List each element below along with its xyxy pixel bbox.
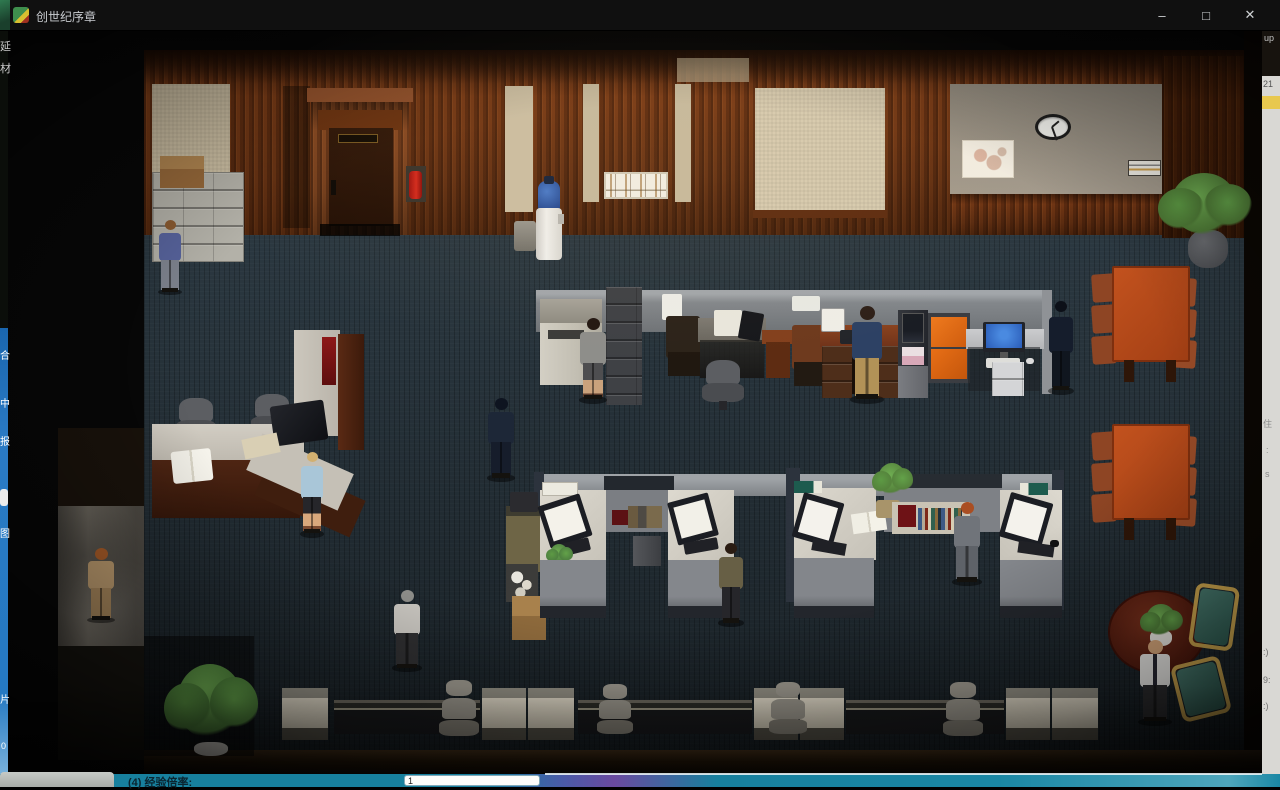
- person-hallway-woman-tan[interactable]: [86, 548, 116, 622]
- exp-rate-input[interactable]: [404, 775, 540, 786]
- person-woman-blue-suit-feet: [162, 288, 178, 292]
- map-poster[interactable]: [962, 140, 1014, 178]
- wall-recess-shadow: [283, 86, 310, 228]
- person-copier-woman-legs: [583, 363, 603, 397]
- round-table-plant-foliage: [1161, 610, 1183, 632]
- person-reception-visitor-legs: [303, 497, 320, 531]
- bottom-office-chair-headrest: [776, 682, 801, 697]
- door-pediment: [307, 88, 413, 102]
- person-hallway-woman-tan-head: [95, 548, 108, 560]
- person-copier-woman[interactable]: [578, 318, 608, 402]
- door-handle: [331, 180, 336, 195]
- person-man-white-shirt-walking-legs: [396, 633, 417, 665]
- desktop-right-yellow-row: [1262, 96, 1280, 109]
- person-woman-blue-suit-head: [165, 220, 176, 230]
- person-police-officer-standing-head: [1055, 301, 1067, 312]
- window-controls: – □ ✕: [1140, 0, 1272, 30]
- wall-fabric-panel: [755, 88, 885, 212]
- info-kiosk-base: [898, 366, 928, 398]
- bottom-office-chair[interactable]: [766, 682, 810, 740]
- person-man-gray-suit-torso: [954, 516, 981, 548]
- person-man-white-shirt-walking-head: [401, 590, 414, 602]
- cubicle-1-paper-tray: [542, 482, 578, 496]
- potted-plant-bottom-left-pot: [194, 742, 228, 756]
- cubicle-4-base: [1000, 606, 1062, 618]
- wall-gray-wainscot: [950, 194, 1162, 235]
- storage-olive-cabinet[interactable]: [506, 506, 540, 572]
- person-man-white-shirt-walking-torso: [394, 604, 421, 635]
- person-man-olive-sweater-torso: [719, 557, 743, 589]
- background-taskbar: (4) 经验倍率:: [0, 774, 1280, 787]
- door-header-trim: [318, 110, 402, 130]
- shelf-red-book[interactable]: [612, 510, 628, 525]
- partition-plant-foliage: [892, 468, 913, 492]
- person-hallway-woman-tan-legs: [91, 588, 111, 618]
- person-man-olive-sweater-legs: [722, 587, 740, 620]
- close-button[interactable]: ✕: [1228, 0, 1272, 30]
- wall-beige-strip-c: [675, 84, 691, 202]
- bottom-beige-unit-top: [528, 688, 574, 698]
- table-leg: [1166, 360, 1176, 382]
- bottom-office-chair-back: [442, 698, 477, 719]
- water-cooler-cap: [544, 176, 554, 184]
- reception-wing-side: [338, 334, 364, 450]
- exp-rate-label: (4) 经验倍率:: [128, 774, 192, 790]
- wall-fabric-sill: [753, 210, 887, 218]
- person-police-officer-standing-legs: [1052, 351, 1070, 388]
- wall-top-inset: [677, 58, 749, 82]
- bottom-beige-unit-base: [482, 728, 526, 740]
- bottom-beige-unit-top: [1052, 688, 1098, 698]
- desktop-right-panel: [1262, 76, 1280, 775]
- cubicle-4-mouse: [1050, 540, 1059, 547]
- desktop-right-dark-top: [1262, 30, 1280, 76]
- bottom-beige-unit[interactable]: [282, 688, 328, 740]
- bottom-beige-unit-base: [1006, 728, 1050, 740]
- shelf-clutter: [628, 506, 662, 528]
- door-threshold-shadow: [320, 224, 400, 236]
- office-chair-upper[interactable]: [700, 360, 746, 412]
- office-chair-upper-stem: [719, 401, 726, 410]
- person-bald-man-white-shirt-legs: [1143, 685, 1167, 719]
- person-man-white-shirt-walking-feet: [397, 664, 416, 668]
- desk-doc-holder: [821, 308, 845, 332]
- door-sign: [338, 134, 378, 143]
- bottom-beige-unit-top: [1006, 688, 1050, 698]
- bottom-office-chair[interactable]: [594, 684, 636, 740]
- printer-on-cabinet[interactable]: [510, 492, 538, 512]
- person-man-navy-sweater-feet: [856, 394, 878, 399]
- potted-plant-bottom-left-foliage: [164, 683, 210, 733]
- desktop-wallpaper-sliver: [0, 0, 10, 30]
- table-leg: [1124, 360, 1134, 382]
- conference-table-2[interactable]: [1112, 424, 1190, 520]
- round-table-plant[interactable]: [1140, 602, 1182, 642]
- person-man-navy-sweater-torso: [852, 322, 882, 359]
- partition-plant[interactable]: [872, 460, 912, 502]
- game-logo-icon: [13, 7, 29, 23]
- person-police-officer-walking-feet: [492, 473, 510, 477]
- person-police-officer-walking-legs: [491, 442, 511, 475]
- person-copier-woman-torso: [580, 332, 605, 365]
- armchair-teal-1[interactable]: [1188, 582, 1240, 652]
- person-woman-blue-suit-legs: [161, 260, 178, 290]
- person-reception-visitor-head: [307, 452, 318, 462]
- person-man-olive-sweater[interactable]: [717, 543, 745, 625]
- file-cabinet-dark[interactable]: [606, 287, 642, 405]
- person-police-officer-walking[interactable]: [486, 398, 516, 480]
- person-man-gray-suit-head: [961, 502, 974, 514]
- window-title: 创世纪序章: [36, 8, 96, 25]
- bottom-office-chair-seat: [943, 720, 983, 736]
- table-leg: [1166, 518, 1176, 540]
- bottom-office-chair[interactable]: [436, 680, 482, 742]
- wall-clock[interactable]: [1035, 114, 1071, 140]
- bottom-office-chair-seat: [597, 720, 634, 735]
- cubicle-4-nameplate: [1020, 483, 1048, 495]
- person-reception-visitor-torso: [301, 466, 323, 499]
- potted-plant-top-right-pot: [1188, 230, 1228, 268]
- scene-right-dark-edge: [1244, 30, 1262, 775]
- person-man-gray-suit[interactable]: [951, 502, 983, 584]
- bottom-beige-unit[interactable]: [1006, 688, 1050, 740]
- wall-beige-strip-b: [583, 84, 599, 202]
- locker-orange-door-2: [931, 349, 967, 379]
- cubicle-3-nameplate: [794, 481, 822, 493]
- desktop-left-blue-strip: [0, 328, 8, 775]
- bottom-office-chair-back: [771, 699, 804, 719]
- locker-orange-door-1: [931, 317, 967, 347]
- person-man-navy-sweater-head: [860, 306, 875, 320]
- person-bald-man-white-shirt[interactable]: [1137, 640, 1173, 724]
- bottom-office-chair-seat: [439, 720, 479, 736]
- person-woman-blue-suit-torso: [159, 233, 181, 262]
- workstation-mouse: [1026, 358, 1034, 364]
- person-police-officer-standing-feet: [1053, 386, 1070, 391]
- cubicle-3-base: [794, 606, 874, 618]
- person-bald-man-white-shirt-head: [1148, 640, 1163, 654]
- window-titlebar[interactable]: 创世纪序章 – □ ✕: [0, 0, 1280, 31]
- bottom-office-chair-back: [946, 699, 981, 719]
- desktop-left-white-pill: [0, 489, 8, 506]
- cardboard-box[interactable]: [160, 156, 204, 188]
- bottom-beige-unit[interactable]: [528, 688, 574, 740]
- person-copier-woman-head: [587, 318, 600, 330]
- person-police-officer-walking-head: [495, 398, 508, 410]
- person-police-officer-standing-torso: [1049, 317, 1073, 353]
- person-bald-man-white-shirt-feet: [1144, 717, 1166, 721]
- window-bottom-edge-highlight: [545, 773, 1262, 775]
- person-woman-blue-suit[interactable]: [157, 220, 183, 294]
- office-chair-upper-seat: [702, 383, 744, 402]
- person-man-olive-sweater-head: [725, 543, 737, 554]
- cubicle-3-lower-face: [794, 558, 874, 612]
- person-reception-visitor-feet: [304, 529, 320, 533]
- bottom-beige-unit-top: [482, 688, 526, 698]
- bottom-office-chair-back: [599, 700, 631, 719]
- bottom-office-chair-headrest: [950, 682, 976, 698]
- bottom-office-chair-headrest: [603, 684, 627, 699]
- person-police-officer-standing[interactable]: [1047, 301, 1075, 393]
- game-scene: [0, 0, 1280, 787]
- potted-plant-bottom-left-foliage: [210, 677, 258, 731]
- person-police-officer-walking-torso: [488, 412, 513, 444]
- bottom-beige-unit-base: [282, 728, 328, 740]
- workstation-monitor-screen: [986, 324, 1022, 348]
- bottom-office-chair-seat: [769, 719, 808, 734]
- bottom-beige-unit-face: [1006, 698, 1050, 728]
- person-man-gray-suit-legs: [956, 546, 977, 579]
- side-table-wood-base: [766, 342, 790, 378]
- person-man-olive-sweater-feet: [723, 618, 740, 622]
- potted-plant-bottom-left[interactable]: [164, 658, 256, 754]
- waste-bin-top[interactable]: [514, 221, 536, 251]
- potted-plant-top-right-foliage: [1158, 188, 1204, 229]
- maximize-button[interactable]: □: [1184, 0, 1228, 30]
- hallway-floor-upper: [58, 428, 144, 508]
- person-hallway-woman-tan-torso: [88, 561, 113, 590]
- person-man-navy-sweater-legs: [855, 358, 879, 396]
- reception-chair-1-back: [179, 398, 212, 422]
- fire-extinguisher[interactable]: [409, 171, 422, 199]
- reception-open-book[interactable]: [170, 448, 213, 484]
- bottom-office-chair[interactable]: [940, 682, 986, 742]
- bottom-beige-unit-face: [528, 698, 574, 728]
- bottom-beige-unit[interactable]: [482, 688, 526, 740]
- potted-plant-top-right-foliage: [1204, 184, 1252, 228]
- paper-tray-upper: [792, 296, 820, 311]
- person-hallway-woman-tan-feet: [92, 616, 110, 620]
- guest-chair-dark-seat: [668, 352, 700, 376]
- person-bald-man-white-shirt-torso: [1140, 654, 1170, 687]
- table-leg: [1124, 518, 1134, 540]
- partition-plant-foliage: [872, 471, 892, 493]
- potted-plant-top-right[interactable]: [1158, 168, 1250, 246]
- taskbar-button[interactable]: [0, 772, 114, 787]
- cubicle-1-base: [540, 606, 606, 618]
- bin-between[interactable]: [633, 536, 661, 566]
- desktop-left-dark: [0, 30, 8, 330]
- reception-monitor[interactable]: [269, 399, 328, 446]
- notice-board[interactable]: [604, 172, 668, 199]
- person-reception-visitor[interactable]: [299, 452, 325, 536]
- person-copier-woman-feet: [584, 395, 602, 399]
- bottom-beige-unit-face: [1052, 698, 1098, 728]
- wall-white-sign[interactable]: [1128, 160, 1161, 176]
- wall-beige-strip-a: [505, 86, 533, 212]
- office-chair-upper-back: [706, 360, 741, 385]
- hallway-floor-lower: [58, 646, 144, 760]
- bottom-beige-unit-top: [282, 688, 328, 698]
- reception-red-flag[interactable]: [322, 337, 336, 385]
- info-kiosk-stickers: [902, 347, 924, 365]
- bottom-beige-unit[interactable]: [1052, 688, 1098, 740]
- bottom-beige-unit-base: [528, 728, 574, 740]
- bottom-beige-unit-face: [482, 698, 526, 728]
- bottom-beige-unit-face: [282, 698, 328, 728]
- cubicle-4-lower-face: [1000, 560, 1062, 612]
- desk-wood-drawers-left[interactable]: [822, 346, 852, 398]
- conference-table-1[interactable]: [1112, 266, 1190, 362]
- water-cooler-tap: [558, 214, 564, 224]
- minimize-button[interactable]: –: [1140, 0, 1184, 30]
- info-kiosk-screen: [902, 313, 924, 343]
- water-cooler-bottle[interactable]: [538, 181, 560, 211]
- shelf-red-folder[interactable]: [898, 505, 916, 527]
- bottom-office-chair-headrest: [446, 680, 472, 696]
- person-man-white-shirt-walking[interactable]: [391, 590, 423, 670]
- person-man-navy-sweater[interactable]: [849, 306, 885, 402]
- bottom-beige-unit-base: [1052, 728, 1098, 740]
- person-man-gray-suit-feet: [957, 577, 976, 581]
- cubicle-1-lower-face: [540, 560, 606, 612]
- workstation-drawer-unit[interactable]: [992, 362, 1024, 396]
